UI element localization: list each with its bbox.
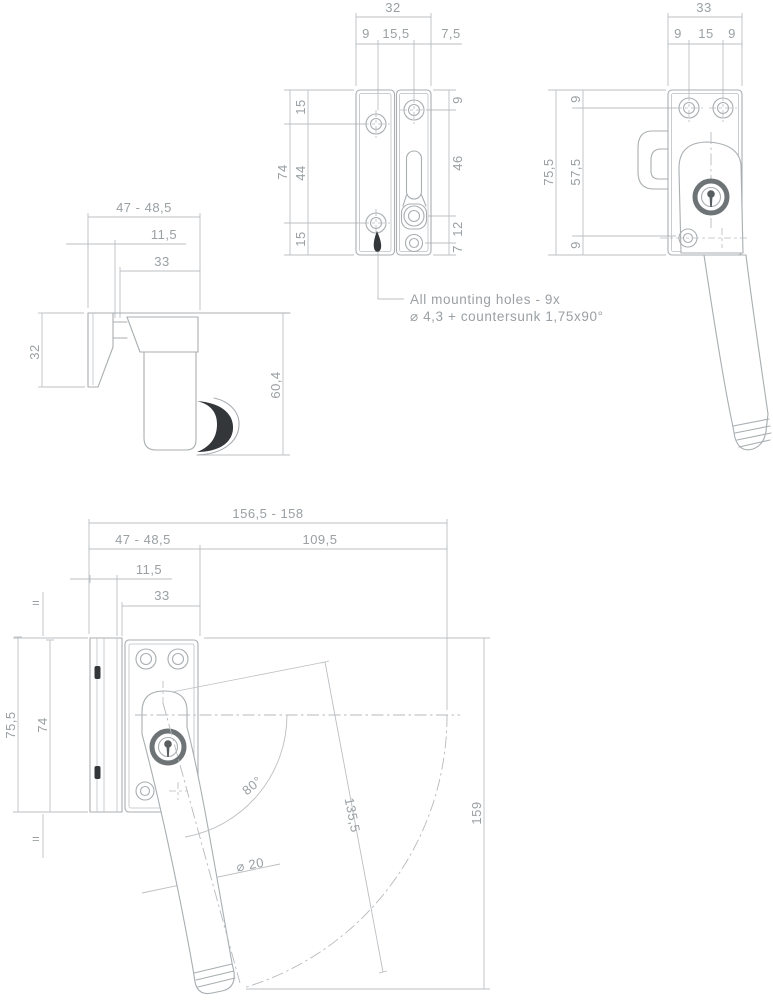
keeper-slot: [407, 151, 422, 199]
dim-label-grip-diameter: ⌀ 20: [235, 855, 265, 875]
dim-label-total-width: 156,5 - 158: [232, 506, 303, 521]
dim-label-height: 75,5: [3, 711, 18, 738]
dim-label: 15,5: [382, 26, 409, 41]
equal-mark: =: [32, 831, 40, 846]
dim-label-width: 33: [696, 0, 711, 15]
view-handle-plan: 47 - 48,5 11,5 33 32 60,4: [27, 200, 290, 455]
note-line-2: ⌀ 4,3 + countersunk 1,75x90°: [410, 309, 604, 324]
dim-label: 57,5: [568, 158, 583, 185]
dim-label: 74: [35, 717, 50, 732]
screw-hole: [406, 235, 423, 252]
dim-label: 9: [728, 26, 736, 41]
dim-label: 11,5: [136, 562, 162, 577]
plan-part-outline: [88, 313, 290, 455]
key-cylinder: [152, 731, 184, 763]
screw-hole: [362, 209, 390, 237]
dim-label: 9: [568, 241, 583, 249]
screw-hole: [709, 94, 737, 122]
dim-label: 15: [698, 26, 713, 41]
window-frame-section: [90, 638, 122, 812]
dim-label-height: 75,5: [541, 158, 556, 185]
dim-label: 9: [450, 96, 465, 104]
dim-label-swing-angle: 80°: [239, 773, 265, 798]
hook: [638, 131, 668, 189]
equal-mark: =: [32, 595, 40, 610]
screw-hole: [136, 782, 154, 800]
keeper-tongue: [402, 204, 427, 229]
dim-label: 15: [293, 99, 308, 114]
dim-label: 9: [674, 26, 682, 41]
dim-label-width: 47 - 48,5: [116, 200, 172, 215]
screw-hole: [675, 94, 703, 122]
key-cylinder: [695, 181, 727, 213]
seal-mark: [95, 766, 101, 779]
open-handle-edge: [172, 662, 325, 692]
grip-shading: [197, 401, 233, 452]
dim-label: 46: [450, 155, 465, 170]
leader-line: [378, 252, 404, 299]
dim-label: 15: [293, 231, 308, 246]
drawing-sheet: 47 - 48,5 11,5 33 32 60,4: [0, 0, 773, 1000]
fastener-handle: [660, 132, 771, 450]
keeper-plate: [397, 90, 432, 255]
tip-trajectory-arc: [243, 715, 447, 988]
screw-hole: [136, 649, 156, 669]
dim-label-hook-height: 32: [27, 344, 42, 359]
dim-label: 7,5: [441, 26, 461, 41]
dim-label: 47 - 48,5: [115, 532, 171, 547]
view-fastener-front: 33 9 15 9 75,5 57,5 9 9: [541, 0, 771, 450]
dim-label-handle-length: 135,5: [342, 797, 363, 834]
dim-label-total-height: 159: [469, 801, 484, 824]
leader-arrow: [374, 231, 381, 252]
view-keeper-plates: 32 9 15,5 7,5 15 44 15 74 9 46 12 7: [275, 0, 465, 255]
dim-label: 33: [154, 588, 169, 603]
swing-dimension-lines: [13, 519, 490, 989]
screw-hole: [168, 649, 188, 669]
screw-hole: [404, 206, 424, 226]
dim-label: 109,5: [302, 532, 337, 547]
screw-hole: [400, 96, 428, 124]
dim-label-plate-height: 74: [275, 164, 290, 179]
dim-label: 9: [362, 26, 370, 41]
dim-label: 9: [568, 95, 583, 103]
screw-hole: [362, 110, 390, 138]
view-mounted-swing: 156,5 - 158 47 - 48,5 109,5 11,5 33 75,5…: [3, 506, 490, 994]
dim-label: 44: [293, 165, 308, 180]
mounted-handle: [142, 681, 235, 994]
dim-label-base: 33: [154, 254, 169, 269]
grip-outline: [144, 352, 196, 450]
strike-plate: [356, 90, 395, 255]
dim-label-plate-width: 32: [385, 0, 400, 15]
dim-label-hook-offset: 11,5: [151, 227, 177, 242]
note-line-1: All mounting holes - 9x: [410, 292, 560, 307]
technical-drawing: 47 - 48,5 11,5 33 32 60,4: [0, 0, 773, 1000]
dim-label-depth: 60,4: [268, 371, 283, 398]
dim-label: 12: [450, 221, 465, 236]
seal-mark: [95, 666, 101, 679]
dim-label: 7: [450, 245, 465, 253]
